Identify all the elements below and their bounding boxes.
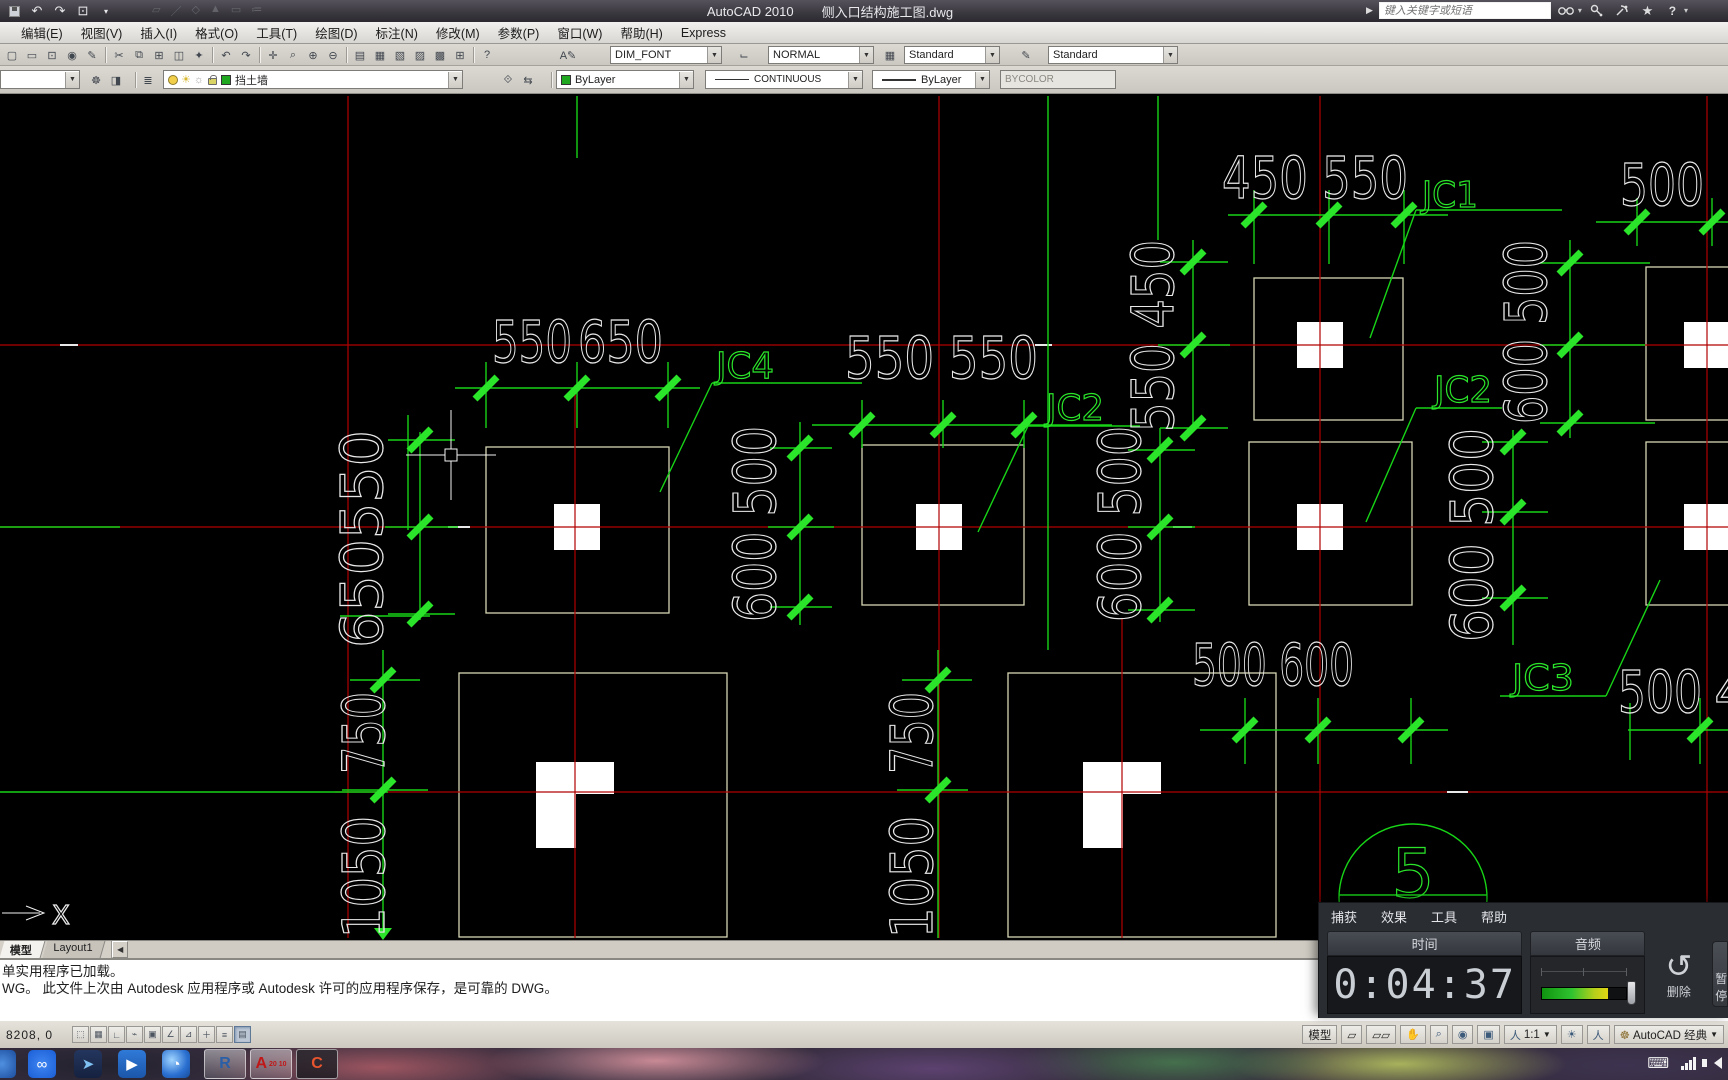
browser-icon[interactable]: ◔ bbox=[162, 1050, 190, 1078]
polar-toggle[interactable]: ⌁ bbox=[126, 1026, 143, 1043]
layer-after-icons: ⟐⇆ bbox=[498, 70, 538, 90]
toolpalettes-icon[interactable]: ▧ bbox=[390, 45, 410, 65]
designcenter-icon[interactable]: ▦ bbox=[370, 45, 390, 65]
cad-label: JC2 bbox=[1044, 388, 1104, 429]
dimension-text: 600 500 bbox=[1438, 428, 1506, 642]
pan-icon[interactable]: ✛ bbox=[263, 45, 283, 65]
workspace-switch-button[interactable]: ☸AutoCAD 经典▼ bbox=[1614, 1025, 1724, 1044]
ghost-icon-1: ▱ bbox=[152, 3, 160, 19]
layer-thaw-icon[interactable]: ☀ bbox=[181, 73, 191, 86]
combo-arrow-icon[interactable]: ▼ bbox=[859, 47, 873, 63]
ghost-icon-6: ≔ bbox=[251, 3, 262, 19]
dimension-text: 650550 bbox=[328, 430, 396, 648]
mleader-style-icon[interactable]: ✎ bbox=[1016, 45, 1036, 65]
menu-draw[interactable]: 绘图(D) bbox=[306, 22, 366, 44]
title-bar: ↶ ↷ ⊡ ▾ ▱／◇▲▭≔ AutoCAD 2010 侧入口结构施工图.dwg… bbox=[0, 0, 1728, 22]
dim-style-combo[interactable]: NORMAL▼ bbox=[768, 46, 874, 64]
search-icon[interactable] bbox=[1557, 2, 1576, 19]
snap-toggle[interactable]: ⬚ bbox=[72, 1026, 89, 1043]
cad-label: JC2 bbox=[1432, 370, 1492, 411]
layer-states-icon[interactable]: ◨ bbox=[106, 70, 126, 90]
recorder-delete-button[interactable]: ↺ 删除 bbox=[1653, 931, 1704, 1014]
taskbar-partial-icon[interactable] bbox=[0, 1050, 16, 1078]
menu-edit[interactable]: 编辑(E) bbox=[12, 22, 72, 44]
lineweight-combo[interactable]: ByLayer ▼ bbox=[872, 70, 990, 89]
baidu-pan-icon[interactable]: ∞ bbox=[28, 1050, 56, 1078]
dimension-text: 650 bbox=[578, 308, 663, 376]
dimension-text: 600 500 bbox=[1086, 426, 1154, 622]
delete-restart-icon: ↺ bbox=[1665, 951, 1692, 981]
linetype-value: CONTINUOUS bbox=[754, 74, 821, 85]
recorder-menu-tools[interactable]: 工具 bbox=[1431, 907, 1457, 926]
sheetset-icon[interactable]: ▨ bbox=[410, 45, 430, 65]
autocad-version-badge: 20 10 bbox=[269, 1061, 287, 1068]
svg-text:X: X bbox=[52, 901, 70, 931]
zoom-realtime-icon[interactable]: ⌕ bbox=[283, 45, 303, 65]
infocenter: ▶ ▾ ★ ? ▾ bbox=[1366, 2, 1688, 19]
status-tray: 模型 ▱ ▱▱ ✋ ⌕ ◉ ▣ 人1:1▼ ☀ 人 ☸AutoCAD 经典▼ bbox=[1302, 1025, 1728, 1044]
text-style-value: DIM_FONT bbox=[615, 49, 671, 61]
ortho-toggle[interactable]: ∟ bbox=[108, 1026, 125, 1043]
autocad-taskbar-button[interactable]: A 20 10 bbox=[250, 1049, 292, 1079]
help-icon[interactable]: ? bbox=[477, 45, 497, 65]
standard-toolbar-icons: ▢▭⊡◉✎✂⧉⊞◫✦↶↷✛⌕⊕⊖▤▦▧▨▩⊞? bbox=[2, 45, 497, 65]
redo-icon[interactable]: ↷ bbox=[236, 45, 256, 65]
ghost-icon-3: ◇ bbox=[191, 3, 199, 19]
publish-icon[interactable]: ◉ bbox=[62, 45, 82, 65]
steering-wheel-icon[interactable]: ◉ bbox=[1452, 1025, 1474, 1044]
toolbar-separator bbox=[473, 47, 474, 63]
ucs-icon: X bbox=[2, 901, 70, 931]
dimension-text: 1050 bbox=[330, 816, 398, 938]
toolbar-separator bbox=[259, 47, 260, 63]
osnap-toggle[interactable]: ▣ bbox=[144, 1026, 161, 1043]
recorder-menu-capture[interactable]: 捕获 bbox=[1331, 907, 1357, 926]
table-style-combo[interactable]: Standard▼ bbox=[904, 46, 1000, 64]
standard-toolbar: ▢▭⊡◉✎✂⧉⊞◫✦↶↷✛⌕⊕⊖▤▦▧▨▩⊞? A✎ DIM_FONT▼ ⌙ N… bbox=[0, 44, 1728, 66]
combo-arrow-icon[interactable]: ▼ bbox=[707, 47, 721, 63]
windows-taskbar: ∞ ➤ ▶ ◔ R A 20 10 C ⌨ bbox=[0, 1048, 1728, 1080]
toolbar-separator bbox=[212, 47, 213, 63]
table-style-icon[interactable]: ▦ bbox=[880, 45, 900, 65]
paste-icon[interactable]: ⊞ bbox=[149, 45, 169, 65]
showmotion-icon[interactable]: ▣ bbox=[1477, 1025, 1499, 1044]
menu-modify[interactable]: 修改(M) bbox=[427, 22, 489, 44]
volume-icon[interactable] bbox=[1708, 1057, 1722, 1069]
layout-icon[interactable]: ▱ bbox=[1341, 1025, 1362, 1044]
dimension-text: 500 bbox=[1618, 658, 1702, 726]
cut-icon[interactable]: ✂ bbox=[109, 45, 129, 65]
coordinates-readout: 8208, 0 bbox=[0, 1028, 66, 1042]
system-tray: ⌨ bbox=[1647, 1054, 1722, 1072]
dyn-toggle[interactable]: ＋ bbox=[198, 1026, 215, 1043]
menu-window[interactable]: 窗口(W) bbox=[548, 22, 611, 44]
window-title: AutoCAD 2010 侧入口结构施工图.dwg bbox=[600, 0, 1060, 22]
menu-view[interactable]: 视图(V) bbox=[72, 22, 132, 44]
menu-parametric[interactable]: 参数(P) bbox=[489, 22, 549, 44]
toolbar-separator bbox=[105, 47, 106, 63]
save-icon bbox=[9, 6, 20, 17]
grid-toggle[interactable]: ▦ bbox=[90, 1026, 107, 1043]
recorder-pause-button-partial[interactable]: 暂停 bbox=[1712, 941, 1728, 1007]
infocenter-toggle-icon[interactable]: ▶ bbox=[1366, 5, 1373, 16]
annotation-scale-button[interactable]: 人1:1▼ bbox=[1504, 1025, 1557, 1044]
dimension-text: 1050 bbox=[878, 816, 946, 938]
recorder-time-label: 时间 bbox=[1327, 931, 1522, 956]
menu-tools[interactable]: 工具(T) bbox=[247, 22, 306, 44]
tab-layout1[interactable]: Layout1 bbox=[43, 941, 106, 958]
ghost-icon-4: ▲ bbox=[210, 3, 221, 19]
scroll-left-icon[interactable]: ◀ bbox=[112, 941, 128, 958]
workspace-combo[interactable]: ▼ bbox=[0, 70, 80, 89]
save-button[interactable] bbox=[4, 2, 24, 20]
recorder-time-value: 0:04:37 bbox=[1327, 956, 1522, 1014]
dimension-text: 750 bbox=[878, 692, 946, 774]
ime-keyboard-icon[interactable]: ⌨ bbox=[1647, 1054, 1669, 1072]
ghost-icon-2: ／ bbox=[170, 3, 181, 19]
dimension-text: 550 450 bbox=[1119, 240, 1187, 432]
revit-taskbar-button[interactable]: R bbox=[204, 1049, 246, 1079]
status-bar: 8208, 0 ⬚ ▦ ∟ ⌁ ▣ ∠ ⊿ ＋ ≡ ▤ 模型 ▱ ▱▱ ✋ ⌕ … bbox=[0, 1020, 1728, 1048]
title-ghost-icons: ▱／◇▲▭≔ bbox=[152, 3, 262, 19]
color-swatch bbox=[561, 75, 571, 85]
recorder-audio-label: 音频 bbox=[1530, 931, 1645, 956]
menu-dimension[interactable]: 标注(N) bbox=[367, 22, 427, 44]
dimension-text: 550 bbox=[492, 308, 572, 376]
layer-manager-icons: ≣ bbox=[138, 70, 158, 90]
pan-tool-icon[interactable]: ✋ bbox=[1400, 1025, 1426, 1044]
layer-previous-icon[interactable]: ⇆ bbox=[518, 70, 538, 90]
ducs-toggle[interactable]: ⊿ bbox=[180, 1026, 197, 1043]
make-current-icon[interactable]: ⟐ bbox=[498, 70, 518, 90]
combo-arrow-icon[interactable]: ▼ bbox=[679, 72, 693, 88]
color-value: ByLayer bbox=[575, 74, 615, 86]
qp-toggle[interactable]: ▤ bbox=[234, 1026, 251, 1043]
menu-format[interactable]: 格式(O) bbox=[186, 22, 247, 44]
dim-style-value: NORMAL bbox=[773, 49, 820, 61]
audio-slider-ticks bbox=[1541, 971, 1627, 972]
recorder-menu-help[interactable]: 帮助 bbox=[1481, 907, 1507, 926]
menu-help[interactable]: 帮助(H) bbox=[611, 22, 671, 44]
doc-title: 侧入口结构施工图.dwg bbox=[822, 2, 953, 21]
dimension-text: 550 550 bbox=[845, 324, 1038, 392]
recorder-panel: 捕获 效果 工具 帮助 时间 0:04:37 音频 ↺ 删除 暂停 bbox=[1318, 902, 1728, 1018]
plot-icon[interactable]: ⊡ bbox=[42, 45, 62, 65]
dimension-text: 600 500 bbox=[721, 426, 789, 622]
tab-model[interactable]: 模型 bbox=[0, 941, 45, 958]
cad-label: JC3 bbox=[1510, 658, 1574, 699]
cad-label: JC1 bbox=[1420, 175, 1478, 216]
help-icon[interactable]: ? bbox=[1663, 2, 1682, 19]
layer-lock-icon[interactable] bbox=[208, 78, 217, 85]
match-properties-icon[interactable]: ✦ bbox=[189, 45, 209, 65]
lwt-toggle[interactable]: ≡ bbox=[216, 1026, 233, 1043]
zoom-tool-icon[interactable]: ⌕ bbox=[1430, 1025, 1448, 1044]
recorder-pause-label: 暂停 bbox=[1715, 970, 1727, 1004]
camtasia-taskbar-button[interactable]: C bbox=[296, 1049, 338, 1079]
undo-button[interactable]: ↶ bbox=[27, 2, 47, 20]
print-button[interactable]: ⊡ bbox=[73, 2, 93, 20]
zoom-window-icon[interactable]: ⊕ bbox=[303, 45, 323, 65]
layer-settings-icon[interactable]: ☸ bbox=[86, 70, 106, 90]
qat-dropdown[interactable]: ▾ bbox=[96, 2, 116, 20]
markup-icon[interactable]: ▩ bbox=[430, 45, 450, 65]
model-space-button[interactable]: 模型 bbox=[1302, 1025, 1337, 1044]
combo-arrow-icon[interactable]: ▼ bbox=[65, 72, 79, 88]
cad-label: JC4 bbox=[714, 346, 774, 387]
mleader-style-combo[interactable]: Standard▼ bbox=[1048, 46, 1178, 64]
paste-special-icon[interactable]: ◫ bbox=[169, 45, 189, 65]
ghost-icon-5: ▭ bbox=[231, 3, 241, 19]
network-signal-icon[interactable] bbox=[1681, 1057, 1696, 1070]
mleader-style-value: Standard bbox=[1053, 49, 1098, 61]
layer-on-icon[interactable] bbox=[168, 75, 178, 85]
drafting-toggles: ⬚ ▦ ∟ ⌁ ▣ ∠ ⊿ ＋ ≡ ▤ bbox=[72, 1026, 251, 1043]
plot-style-value: BYCOLOR bbox=[1005, 74, 1054, 85]
layer-name: 挡土墙 bbox=[235, 72, 268, 88]
undo-icon[interactable]: ↶ bbox=[216, 45, 236, 65]
text-style-icon[interactable]: A✎ bbox=[558, 45, 578, 65]
audio-level-meter bbox=[1541, 987, 1627, 1000]
recorder-menu-bar: 捕获 效果 工具 帮助 bbox=[1319, 903, 1728, 929]
color-combo[interactable]: ByLayer ▼ bbox=[556, 70, 694, 89]
search-input[interactable] bbox=[1379, 2, 1551, 19]
menu-bar: 编辑(E) 视图(V) 插入(I) 格式(O) 工具(T) 绘图(D) 标注(N… bbox=[0, 22, 1728, 44]
autoscale-icon[interactable]: 人 bbox=[1587, 1025, 1610, 1044]
combo-arrow-icon[interactable]: ▼ bbox=[975, 72, 989, 88]
menu-insert[interactable]: 插入(I) bbox=[131, 22, 186, 44]
dimension-text: 500 bbox=[1620, 151, 1704, 219]
zoom-previous-icon[interactable]: ⊖ bbox=[323, 45, 343, 65]
audio-slider-handle[interactable] bbox=[1627, 981, 1636, 1005]
dimension-text: 500 600 bbox=[1192, 631, 1354, 699]
combo-arrow-icon[interactable]: ▼ bbox=[848, 72, 862, 88]
layer-tool-icons: ☸◨ bbox=[86, 70, 126, 90]
properties-icon[interactable]: ▤ bbox=[350, 45, 370, 65]
recorder-time-group: 时间 0:04:37 bbox=[1327, 931, 1522, 1014]
layer-color-swatch bbox=[221, 75, 231, 85]
open-icon[interactable]: ▭ bbox=[22, 45, 42, 65]
communication-center-icon[interactable] bbox=[1613, 2, 1632, 19]
app-title: AutoCAD 2010 bbox=[707, 4, 794, 19]
dimension-text: 600 500 bbox=[1492, 240, 1560, 424]
recorder-audio-group: 音频 bbox=[1530, 931, 1645, 1014]
dim-style-icon[interactable]: ⌙ bbox=[734, 45, 754, 65]
table-style-value: Standard bbox=[909, 49, 954, 61]
combo-arrow-icon[interactable]: ▼ bbox=[1163, 47, 1177, 63]
qnew-icon[interactable]: ▢ bbox=[2, 45, 22, 65]
edit-icon[interactable]: ✎ bbox=[82, 45, 102, 65]
calculator-icon[interactable]: ⊞ bbox=[450, 45, 470, 65]
menu-express[interactable]: Express bbox=[672, 22, 735, 44]
key-icon[interactable] bbox=[1588, 2, 1607, 19]
layer-combo[interactable]: ☀ ☼ 挡土墙 ▼ bbox=[163, 70, 463, 89]
lineweight-value: ByLayer bbox=[921, 74, 961, 86]
quick-access-toolbar: ↶ ↷ ⊡ ▾ bbox=[0, 2, 116, 20]
layouts-icon[interactable]: ▱▱ bbox=[1366, 1025, 1396, 1044]
combo-arrow-icon[interactable]: ▼ bbox=[448, 72, 462, 88]
favorites-star-icon[interactable]: ★ bbox=[1638, 2, 1657, 19]
app-arrow-icon[interactable]: ▶ bbox=[118, 1050, 146, 1078]
copy-icon[interactable]: ⧉ bbox=[129, 45, 149, 65]
xunlei-icon[interactable]: ➤ bbox=[74, 1050, 102, 1078]
plot-style-combo: BYCOLOR bbox=[1000, 70, 1116, 89]
dimension-text: 4 bbox=[1714, 658, 1728, 726]
recorder-delete-label: 删除 bbox=[1667, 983, 1691, 1000]
linetype-combo[interactable]: CONTINUOUS ▼ bbox=[705, 70, 863, 89]
search-dropdown-icon[interactable]: ▾ bbox=[1578, 6, 1582, 15]
recorder-menu-effects[interactable]: 效果 bbox=[1381, 907, 1407, 926]
combo-arrow-icon[interactable]: ▼ bbox=[985, 47, 999, 63]
otrack-toggle[interactable]: ∠ bbox=[162, 1026, 179, 1043]
toolbar-separator bbox=[346, 47, 347, 63]
layer-manager-icon[interactable]: ≣ bbox=[138, 70, 158, 90]
layer-vpfreeze-icon[interactable]: ☼ bbox=[194, 74, 204, 86]
redo-button[interactable]: ↷ bbox=[50, 2, 70, 20]
dimension-text: 750 bbox=[330, 692, 398, 774]
layers-toolbar: ▼ ☸◨ ≣ ☀ ☼ 挡土墙 ▼ ⟐⇆ ByLayer ▼ CONTINUOUS… bbox=[0, 66, 1728, 94]
screen: 550650550 550450 550500500 6005004JC4JC2… bbox=[0, 0, 1728, 1080]
help-dropdown-icon[interactable]: ▾ bbox=[1684, 6, 1688, 15]
text-style-combo[interactable]: DIM_FONT▼ bbox=[610, 46, 722, 64]
annotation-visibility-icon[interactable]: ☀ bbox=[1561, 1025, 1583, 1044]
dimension-text: 450 550 bbox=[1222, 144, 1408, 212]
